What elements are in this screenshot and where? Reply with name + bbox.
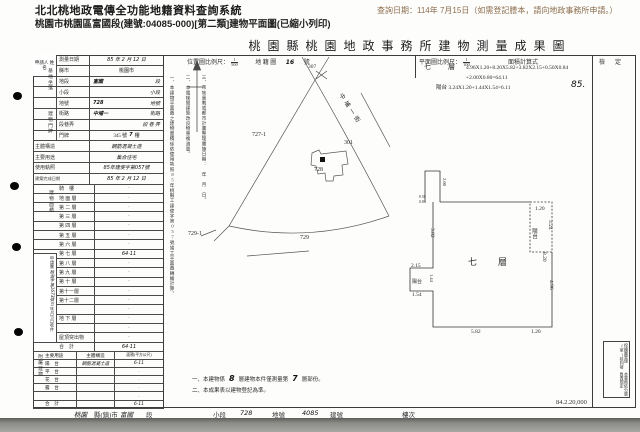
floor-row-label: 地 面 層 [33, 194, 95, 202]
survey-date-label: 測量日期 [57, 55, 90, 65]
table-row: 使用執照 85年建使字第057號 [33, 163, 163, 174]
area-formula: 七 層4.96X1.20+8.20X5.82+3.82X2.15+0.50X0.… [424, 62, 568, 94]
annex-row: 平 台· [33, 368, 163, 376]
applicant-name-cell: 申請人 姓名 [33, 55, 57, 77]
document-subtitle: 桃園市桃園區富國段(建號:04085-000)[第二類]建物平面圖(已縮小列印) [35, 16, 331, 30]
divider [415, 55, 416, 78]
floor-area-group-label: 建物面積 [47, 190, 54, 250]
annex-area: 面積(平方公尺) [115, 353, 163, 358]
annex-group-label: 附屬建物 [36, 354, 43, 406]
floor-row-label: 第 五 層 [33, 231, 95, 239]
annex-area: · [115, 385, 163, 390]
print-batch-code: 84.2.20,000 [556, 399, 587, 406]
section-value: 富國 [93, 78, 103, 85]
floor-row-label: 第 六 層 [33, 240, 95, 248]
use-label: 主要用途 [33, 152, 90, 162]
scale-fraction: 1500 [231, 58, 238, 68]
floor-row-label: 第 三 層 [33, 212, 95, 220]
annex-structure [77, 392, 115, 399]
floor-row-label: 第 四 層 [33, 222, 95, 230]
floor-row-value: · [95, 289, 163, 294]
receipt-date: 85年2月5日收件 [35, 302, 55, 331]
floor-row-value: 64·11 [95, 344, 163, 350]
lane-label: 段巷弄 [57, 120, 90, 130]
parcel-value: 728 [93, 100, 103, 106]
floor-row-value: · [95, 326, 163, 331]
annex-rows: 主要用途主體構造面積(平方公尺)陽 台鋼筋混凝土造6·11平 台·花 台·露 台… [33, 352, 163, 409]
annex-structure [77, 368, 115, 375]
floor-row-value: · [95, 270, 163, 275]
receipt-ref: 桃測字第1673號 [35, 270, 55, 302]
floor-row-label: 騎 樓 [33, 185, 95, 193]
annex-area: 6·11 [115, 402, 163, 407]
vertical-note: 一、本建物平面圖之建物面積係依使用執照85年桃縣工建使字第057號竣工平面圖轉繪… [164, 75, 175, 355]
annex-row: · [33, 392, 163, 400]
floor-row-value: · [95, 316, 163, 321]
annex-structure: 鋼筋混凝土造 [77, 360, 115, 367]
floor-row-value: · [95, 233, 163, 238]
street-label: 街路 [57, 109, 90, 119]
footer-building-no-hw: 4085 [302, 409, 319, 417]
floor-row-value: · [95, 196, 163, 201]
floor-row-label: 第 二 層 [33, 203, 95, 211]
total-floors-hw: 8 [225, 374, 239, 383]
floor-row-value: · [95, 261, 163, 266]
annex-structure: 主體構造 [77, 352, 115, 359]
floor-row-value: · [95, 335, 163, 340]
door-floor-hw: 7 [129, 132, 132, 138]
annex-area: · [115, 377, 163, 382]
floor-row-value: · [95, 223, 163, 228]
receipt-title: 申請書 [35, 256, 55, 269]
use-value: 集合住宅 [90, 154, 163, 161]
group-label-site: 基地坐落 [46, 68, 53, 112]
section-label: 地段 [57, 77, 90, 87]
subsection-label: 小段 [57, 87, 90, 97]
vertical-note: 三、市地重劃或都市計畫整理實施日期： 年 月 日。 [196, 75, 207, 355]
plan-notes: 一、本建物係8層建物本件僅測量第7層部份。 二、本成果表以建物登記為準。 [192, 374, 324, 397]
floor-row-value: · [95, 186, 163, 191]
annex-area: · [115, 369, 163, 374]
doc-title: 桃園縣桃園地政事務所建物測量成果圖 [200, 37, 620, 54]
annex-header-row: 主要用途主體構造面積(平方公尺) [33, 352, 163, 360]
surveyed-floor-hw: 7 [288, 374, 302, 383]
annex-row: 花 台· [33, 376, 163, 384]
annex-structure [77, 376, 115, 383]
binder-hole [12, 243, 21, 251]
vertical-note: 二、本電梯間建築改良物重複測量。 [180, 75, 191, 355]
lane-suffix: 段 巷 弄 [142, 121, 160, 128]
structure-value: 鋼筋混凝土造 [90, 143, 163, 150]
binder-hole [10, 182, 19, 190]
group-label-door: 建物門牌 [46, 111, 53, 144]
completion-date-label: 建築完成日期 [33, 174, 90, 184]
page: { "app": { "title": "北北桃地政電傳全功能地籍資料查詢系統"… [0, 0, 640, 432]
county-label: 縣市 [57, 66, 90, 76]
formula-line2: +2.00X0.80=64.11 [424, 75, 568, 81]
floor-row-value: · [95, 279, 163, 284]
annex-row: 陽 台鋼筋混凝土造6·11 [33, 360, 163, 368]
floor-row-value: 64·11 [95, 251, 163, 257]
subsection-suffix: 小段 [150, 89, 160, 96]
stamp-text-left: 本業務依分層負責規定 [605, 372, 628, 396]
vertical-notes: 一、本建物平面圖之建物面積係依使用執照85年桃縣工建使字第057號竣工平面圖轉繪… [164, 75, 207, 355]
floor-row-value: · [95, 298, 163, 303]
floor-row-value: · [95, 242, 163, 247]
cadastral-map-no: 16 [286, 59, 294, 66]
license-label: 使用執照 [33, 163, 90, 173]
annex-structure [77, 384, 115, 391]
stamp-text-right: 校繪圖管理(室)核判發 [605, 343, 628, 371]
floor-row-value: · [95, 214, 163, 219]
query-date-note: 查詢日期：114年 7月15日（如需登記謄本，請向地政事務所申請。） [377, 5, 617, 16]
street-value: 中埔一 [93, 110, 108, 117]
floor-row-label: 合 計 [33, 343, 95, 351]
formula-line3: 陽台 3.24X1.20+1.44X1.54=6.11 [424, 83, 568, 91]
cadastral-sheet-no: 307 [308, 64, 316, 70]
annex-structure [77, 401, 115, 408]
floor-row-value: · [95, 205, 163, 210]
parcel-label: 地號 [57, 98, 90, 108]
delegation-stamp-box: 校繪圖管理(室)核判發 本業務依分層負責規定 [603, 341, 630, 398]
structure-label: 主體構造 [33, 141, 90, 151]
completion-date-value: 85 年 2 月 12 日 [90, 175, 163, 182]
door-label: 門牌 [57, 131, 90, 141]
binder-hole [13, 92, 22, 100]
check-column-header: 檢定 [598, 57, 632, 66]
location-map-header: 位置圖比例尺：1500 地 籍 圖 16 號 [187, 57, 310, 68]
year-stamp: 85. [571, 80, 585, 90]
receipt-box: 申請書 桃測字第1673號 85年2月5日收件 [33, 253, 57, 343]
license-value: 85年建使字第057號 [90, 164, 163, 171]
divider [592, 55, 593, 408]
annex-area: · [115, 394, 163, 399]
county-value: 桃園市 [90, 67, 163, 74]
floor-row: 合 計64·11 [33, 343, 163, 352]
formula-line1: 4.96X1.20+8.20X5.82+3.82X2.15+0.50X0.84 [466, 65, 568, 71]
table-row: 建築完成日期 85 年 2 月 12 日 [33, 174, 163, 185]
building-info-table: 測量日期 85 年 2 月 12 日 縣市 桃園市 地段 富國段 小段 小段 地… [33, 55, 163, 409]
annex-row: 露 台· [33, 384, 163, 392]
floor-row-value: · [95, 307, 163, 312]
table-row: 主要用途 集合住宅 [33, 152, 163, 163]
survey-date-value: 85 年 2 月 12 日 [90, 56, 163, 63]
footer-parcel-hw: 728 [240, 409, 252, 417]
annex-area: 6·11 [115, 361, 163, 366]
scan-edge-band [0, 418, 640, 432]
annex-row: 合 計6·11 [33, 401, 163, 409]
plan-note-2: 二、本成果表以建物登記為準。 [192, 386, 324, 394]
binder-hole [14, 328, 23, 336]
